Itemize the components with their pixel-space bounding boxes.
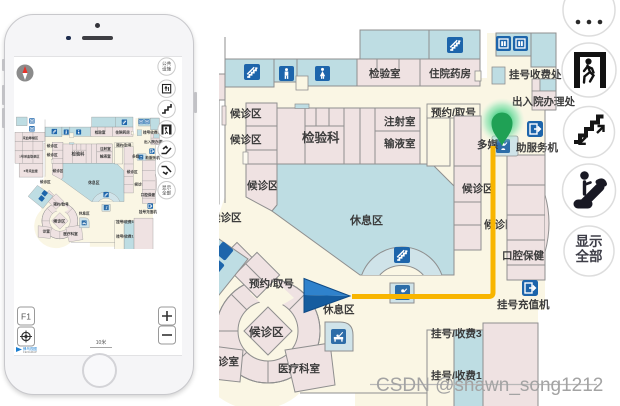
- svg-text:全部: 全部: [162, 190, 172, 197]
- svg-text:F1: F1: [21, 312, 31, 322]
- svg-text:设施: 设施: [162, 66, 172, 73]
- svg-text:显示: 显示: [162, 185, 172, 190]
- svg-text:10米: 10米: [96, 339, 107, 346]
- svg-text:FENGMAP: FENGMAP: [23, 350, 37, 354]
